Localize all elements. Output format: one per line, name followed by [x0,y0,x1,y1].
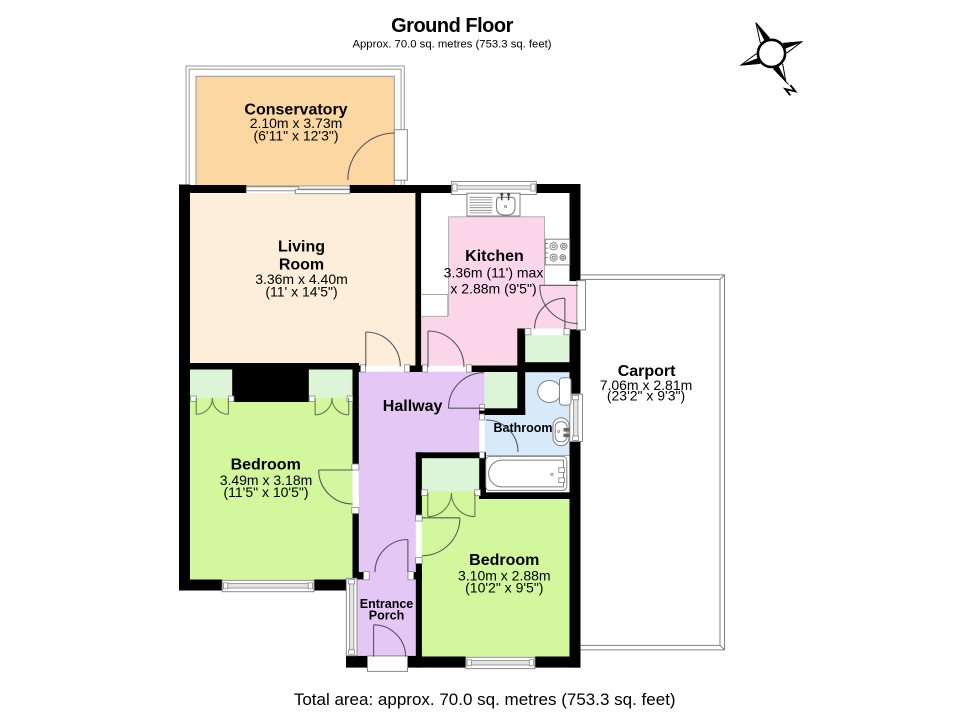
svg-text:Bathroom: Bathroom [493,421,552,435]
svg-text:Total area: approx. 70.0 sq. m: Total area: approx. 70.0 sq. metres (753… [294,690,676,709]
svg-text:x 2.88m (9'5"): x 2.88m (9'5") [450,281,536,297]
svg-text:(10'2" x 9'5"): (10'2" x 9'5") [465,579,543,595]
svg-text:3.36m (11') max: 3.36m (11') max [444,264,544,280]
svg-text:Approx. 70.0 sq. metres (753.3: Approx. 70.0 sq. metres (753.3 sq. feet) [352,39,551,51]
svg-text:(23'2" x 9'3"): (23'2" x 9'3") [607,388,685,404]
svg-text:Living: Living [278,239,325,256]
svg-text:(11' x 14'5"): (11' x 14'5") [265,284,337,300]
svg-text:(11'5" x 10'5"): (11'5" x 10'5") [223,484,308,500]
svg-text:Kitchen: Kitchen [465,248,524,265]
svg-text:Porch: Porch [369,609,404,623]
svg-text:Bedroom: Bedroom [231,456,301,473]
svg-text:Ground Floor: Ground Floor [391,15,513,37]
svg-text:Hallway: Hallway [383,398,443,415]
svg-text:(6'11" x 12'3"): (6'11" x 12'3") [253,128,338,144]
